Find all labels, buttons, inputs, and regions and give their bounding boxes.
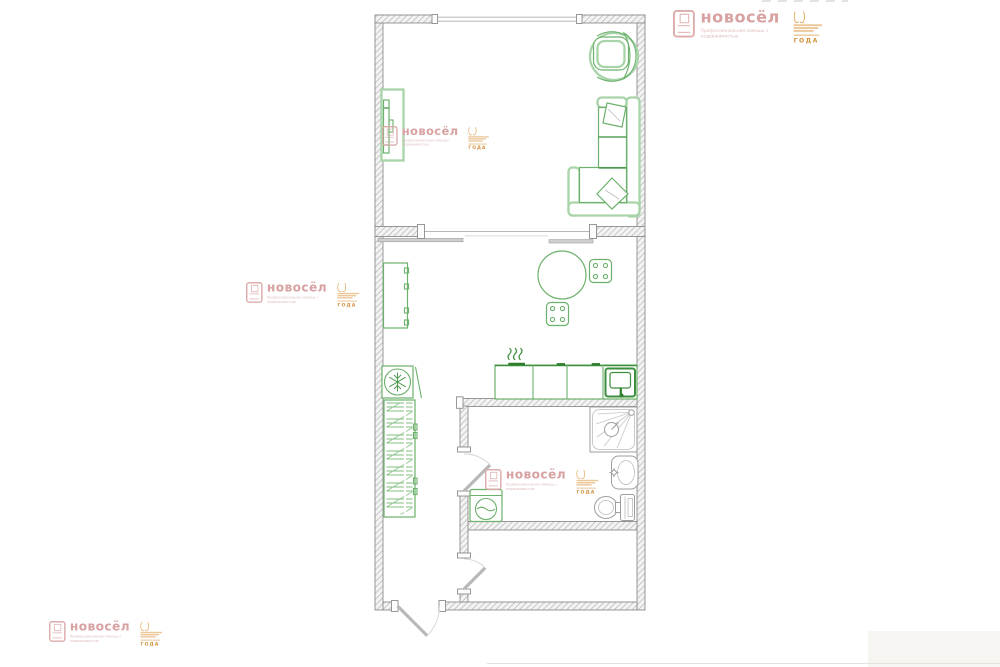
stove-steam-icon xyxy=(508,348,522,360)
award-badge: ГОДА xyxy=(794,10,828,44)
toilet-icon xyxy=(595,495,635,521)
watermark: новосёл Профессиональная помощь с недвиж… xyxy=(246,282,363,308)
armchair-icon xyxy=(590,32,638,82)
badge-year: ГОДА xyxy=(794,34,819,44)
watermark: новосёл Профессиональная помощь с недвиж… xyxy=(673,10,828,44)
floor-plan-svg xyxy=(0,0,1000,667)
badge-text-line xyxy=(794,30,814,32)
pillow-icon xyxy=(603,103,626,127)
washbasin-icon xyxy=(610,456,639,489)
novosel-logo-icon xyxy=(246,282,263,303)
shower-icon xyxy=(590,407,637,452)
award-badge: ГОДА xyxy=(140,621,166,647)
watermark: новосёл Профессиональная помощь с недвиж… xyxy=(382,126,493,151)
watermark-tagline: Профессиональная помощь с недвижимостью xyxy=(701,29,783,41)
novosel-logo-icon xyxy=(382,126,398,146)
chair-icon xyxy=(547,303,569,326)
laurel-icon xyxy=(140,621,149,630)
novosel-logo-icon xyxy=(485,469,502,490)
corner-sofa-icon xyxy=(569,98,640,217)
floor-plan-page: новосёл Профессиональная помощь с недвиж… xyxy=(0,0,1000,667)
cabinet-icon xyxy=(384,263,409,328)
laurel-icon xyxy=(794,10,805,22)
laurel-icon xyxy=(337,282,346,291)
award-badge: ГОДА xyxy=(468,126,492,151)
watermark: новосёл Профессиональная помощь с недвиж… xyxy=(485,469,602,495)
wardrobe-icon xyxy=(384,400,417,517)
award-badge: ГОДА xyxy=(576,469,602,495)
refrigerator-icon xyxy=(382,366,422,398)
badge-text-line xyxy=(794,24,823,26)
laurel-icon xyxy=(576,469,585,478)
watermark: новосёл Профессиональная помощь с недвиж… xyxy=(49,621,166,647)
chair-icon xyxy=(590,260,612,283)
laurel-icon xyxy=(468,126,476,135)
watermark-brand: новосёл xyxy=(701,10,783,26)
door-leaf-icon xyxy=(416,367,422,398)
badge-text-line xyxy=(794,27,819,29)
kitchen-sink-icon xyxy=(606,369,636,398)
window-icon xyxy=(432,15,582,24)
dining-table-icon xyxy=(538,251,586,299)
entrance-door xyxy=(398,606,440,636)
novosel-logo-icon xyxy=(673,10,695,38)
award-badge: ГОДА xyxy=(337,282,363,308)
hall-door xyxy=(464,559,485,589)
kitchen-counter-icon xyxy=(495,348,637,399)
novosel-logo-icon xyxy=(49,621,66,642)
